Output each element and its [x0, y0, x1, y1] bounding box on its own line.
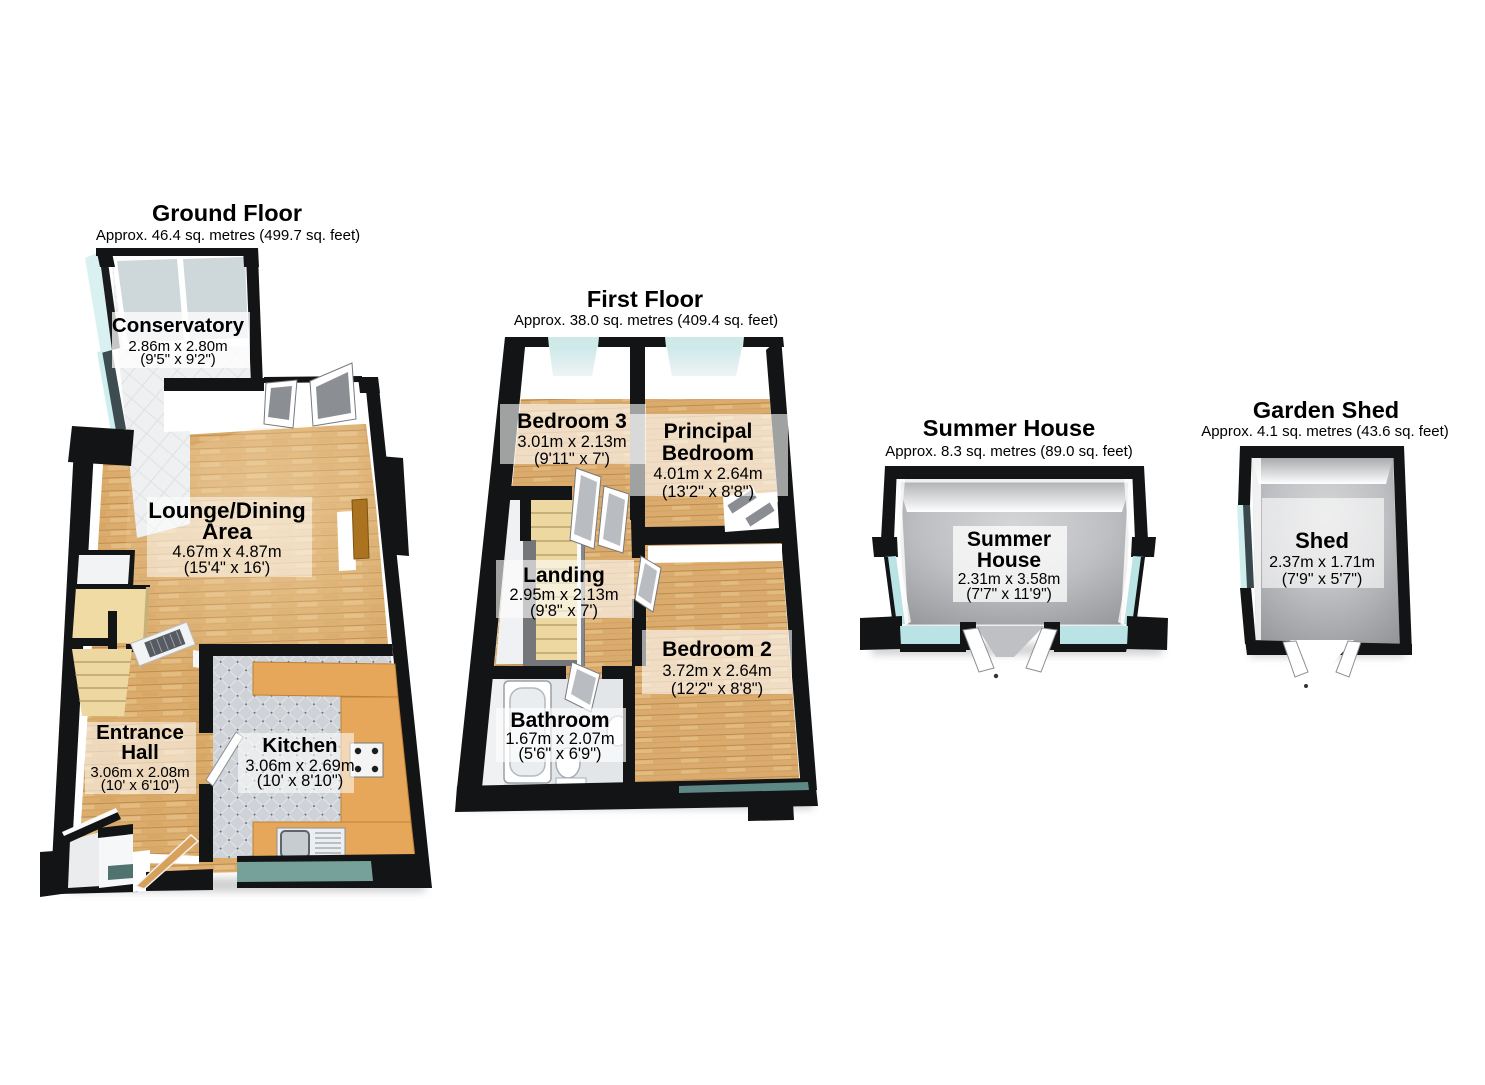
svg-text:3.01m x 2.13m: 3.01m x 2.13m: [517, 433, 626, 451]
svg-text:Kitchen: Kitchen: [262, 734, 337, 757]
svg-text:Approx. 38.0 sq. metres (409.4: Approx. 38.0 sq. metres (409.4 sq. feet): [514, 312, 778, 329]
svg-text:Bedroom 2: Bedroom 2: [662, 638, 772, 661]
svg-text:(10' x 6'10"): (10' x 6'10"): [101, 777, 180, 794]
svg-text:4.01m x 2.64m: 4.01m x 2.64m: [653, 465, 762, 483]
svg-text:Summer House: Summer House: [923, 415, 1095, 441]
svg-text:(5'6" x 6'9"): (5'6" x 6'9"): [518, 745, 601, 763]
svg-text:Bathroom: Bathroom: [510, 709, 609, 732]
svg-text:(12'2" x 8'8"): (12'2" x 8'8"): [671, 680, 763, 698]
svg-text:Garden Shed: Garden Shed: [1253, 397, 1399, 423]
svg-text:House: House: [977, 549, 1041, 572]
svg-text:(7'7" x 11'9"): (7'7" x 11'9"): [966, 586, 1052, 603]
svg-text:(9'11" x 7'): (9'11" x 7'): [534, 450, 610, 468]
svg-text:Hall: Hall: [121, 741, 159, 764]
svg-text:Approx. 46.4 sq. metres (499.7: Approx. 46.4 sq. metres (499.7 sq. feet): [96, 227, 360, 244]
svg-text:Ground Floor: Ground Floor: [152, 200, 302, 226]
svg-text:(10' x 8'10"): (10' x 8'10"): [257, 772, 343, 790]
svg-text:Bedroom: Bedroom: [662, 442, 754, 465]
svg-text:Bedroom 3: Bedroom 3: [517, 410, 627, 433]
svg-text:3.72m x 2.64m: 3.72m x 2.64m: [662, 662, 771, 680]
svg-text:First Floor: First Floor: [587, 286, 703, 312]
svg-text:(13'2" x 8'8"): (13'2" x 8'8"): [662, 483, 754, 501]
svg-text:(9'5" x 9'2"): (9'5" x 9'2"): [140, 351, 216, 368]
svg-text:Approx. 4.1 sq. metres (43.6 s: Approx. 4.1 sq. metres (43.6 sq. feet): [1201, 423, 1449, 440]
svg-text:(9'8" x 7'): (9'8" x 7'): [530, 602, 598, 620]
svg-text:Landing: Landing: [523, 564, 605, 587]
svg-text:Conservatory: Conservatory: [112, 314, 245, 337]
svg-text:(15'4" x 16'): (15'4" x 16'): [184, 559, 270, 577]
svg-text:Area: Area: [202, 519, 253, 544]
svg-text:Summer: Summer: [967, 528, 1051, 551]
svg-text:Approx. 8.3 sq. metres (89.0 s: Approx. 8.3 sq. metres (89.0 sq. feet): [885, 443, 1133, 460]
svg-text:Shed: Shed: [1295, 528, 1349, 553]
svg-text:Principal: Principal: [664, 420, 753, 443]
svg-text:(7'9" x 5'7"): (7'9" x 5'7"): [1282, 571, 1363, 588]
svg-text:2.37m x 1.71m: 2.37m x 1.71m: [1269, 554, 1375, 571]
